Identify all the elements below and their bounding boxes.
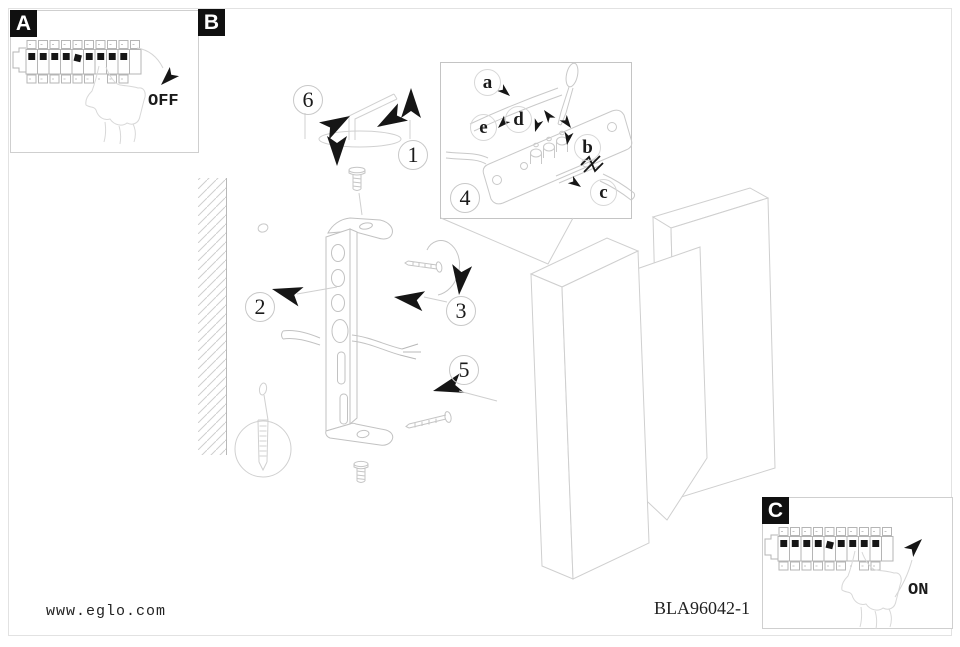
off-label: OFF (148, 92, 179, 111)
arrow-up-icon (401, 88, 421, 118)
terminal-e-label: e (470, 114, 497, 141)
arrow-down-icon (449, 264, 472, 296)
on-label: ON (908, 581, 928, 600)
terminal-screws (531, 131, 568, 164)
terminal-b-label: b (574, 134, 601, 161)
inset-arrow-icon (531, 118, 544, 133)
step-3-badge: 3 (446, 296, 476, 326)
lamp-body (531, 188, 775, 579)
website-link: www.eglo.com (46, 603, 166, 620)
panel-c-label: C (762, 497, 789, 524)
hand-icon (86, 66, 145, 144)
step-4-badge: 4 (450, 183, 480, 213)
arrow-left-icon (393, 287, 425, 311)
step-6-badge: 6 (293, 85, 323, 115)
screw-rotation-icon (405, 241, 460, 295)
mounting-bracket (326, 218, 393, 445)
screwdriver-icon (558, 62, 580, 125)
step-2-badge: 2 (245, 292, 275, 322)
terminal-a-label: a (474, 69, 501, 96)
arrow-down-icon (327, 136, 347, 166)
step-1-badge: 1 (398, 140, 428, 170)
step-5-badge: 5 (449, 355, 479, 385)
instruction-sheet: A B C (0, 0, 960, 647)
callout-lines (441, 218, 573, 264)
switch-off-arrow-icon (156, 67, 179, 90)
terminal-c-label: c (590, 179, 617, 206)
screw-icon (349, 167, 365, 190)
drill-hole (257, 223, 269, 234)
breaker-strip-on (765, 528, 927, 630)
wall-plug-detail (235, 382, 291, 477)
screw-icon (406, 411, 452, 428)
screw-icon (354, 461, 368, 482)
model-number: BLA96042-1 (654, 598, 750, 619)
diagram-art (0, 0, 960, 647)
terminal-d-label: d (505, 106, 532, 133)
panel-a-label: A (10, 10, 37, 37)
inset-wire (446, 152, 488, 164)
inset-arrow-icon (540, 107, 555, 123)
panel-b-label: B (198, 9, 225, 36)
switch-on-arrow-icon (904, 534, 927, 557)
